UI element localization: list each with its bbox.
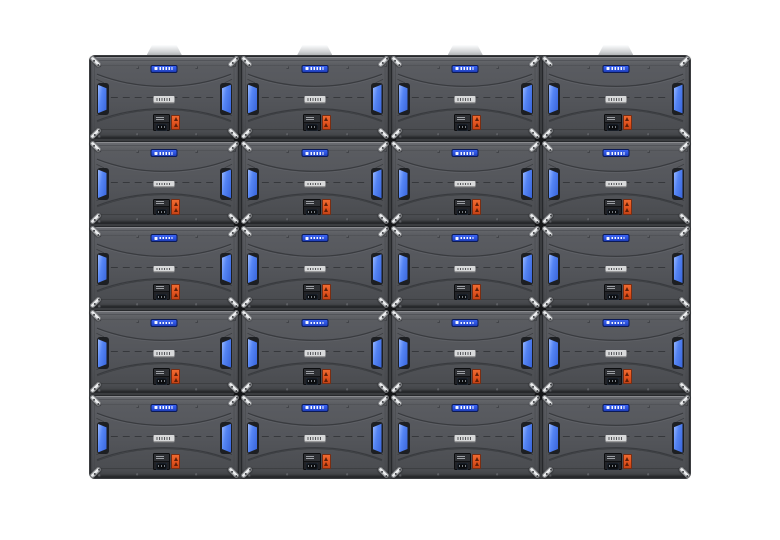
status-display — [306, 209, 318, 216]
warning-triangle-icon — [174, 372, 178, 376]
screw-icon — [685, 234, 688, 237]
cabinet-back-cover — [542, 226, 691, 309]
screw-icon — [437, 473, 440, 476]
brand-logo-text-marks — [160, 406, 173, 409]
brand-badge — [452, 404, 479, 412]
screw-icon — [384, 403, 387, 406]
warning-triangle-icon — [174, 123, 178, 127]
vent-blue-insert — [399, 84, 408, 114]
screw-icon — [384, 474, 387, 477]
screw-icon — [399, 64, 402, 67]
vent-left — [97, 337, 109, 369]
cabinet-back-cover — [391, 226, 540, 309]
screw-icon — [233, 234, 236, 237]
vent-blue-insert — [373, 423, 382, 453]
screw-icon — [136, 388, 139, 391]
module-print-marks — [154, 285, 170, 293]
screw-icon — [136, 405, 139, 408]
screw-icon — [233, 149, 236, 152]
power-connector — [171, 454, 180, 470]
serial-label — [605, 181, 626, 188]
screw-icon — [647, 303, 650, 306]
vent-blue-insert — [248, 254, 257, 284]
brand-logo-text-marks — [611, 322, 624, 325]
cabinet-back-cover — [90, 56, 239, 139]
screw-icon — [437, 303, 440, 306]
module-print-marks — [304, 200, 320, 208]
status-display — [457, 463, 469, 470]
serial-label — [304, 96, 325, 103]
serial-label — [154, 96, 175, 103]
vent-blue-insert — [674, 169, 683, 199]
vent-blue-insert — [98, 338, 107, 368]
brand-badge — [151, 65, 178, 73]
screw-icon — [346, 303, 349, 306]
cabinet-panel — [541, 309, 692, 394]
barcode-marks — [307, 183, 322, 186]
cabinet-back-cover — [90, 395, 239, 478]
brand-logo-icon — [456, 67, 459, 70]
cabinet-panel — [390, 394, 541, 479]
screw-icon — [647, 405, 650, 408]
cabinet-panel — [390, 225, 541, 310]
status-display — [306, 378, 318, 385]
warning-triangle-icon — [475, 123, 479, 127]
cabinet-back-cover — [90, 226, 239, 309]
vent-blue-insert — [248, 84, 257, 114]
vent-blue-insert — [248, 338, 257, 368]
vent-left — [247, 168, 259, 200]
vent-right — [672, 83, 684, 115]
cabinet-back-cover — [542, 310, 691, 393]
receiving-card-module — [153, 368, 171, 385]
vent-blue-insert — [674, 423, 683, 453]
barcode-marks — [458, 98, 473, 101]
power-connector — [472, 115, 481, 131]
screw-icon — [384, 220, 387, 223]
screw-icon — [346, 388, 349, 391]
barcode-marks — [157, 437, 172, 440]
brand-logo-icon — [155, 406, 158, 409]
status-display — [607, 209, 619, 216]
module-print-marks — [154, 369, 170, 377]
vent-blue-insert — [523, 169, 532, 199]
barcode-marks — [608, 268, 623, 271]
cabinet-back-cover — [90, 310, 239, 393]
brand-logo-icon — [606, 67, 609, 70]
brand-logo-icon — [155, 67, 158, 70]
receiving-card-module — [303, 368, 321, 385]
brand-badge — [151, 234, 178, 242]
serial-label — [455, 435, 476, 442]
screw-icon — [437, 66, 440, 69]
vent-blue-insert — [222, 169, 231, 199]
barcode-marks — [307, 437, 322, 440]
vent-left — [97, 253, 109, 285]
screw-icon — [136, 66, 139, 69]
module-print-marks — [455, 200, 471, 208]
serial-label — [455, 96, 476, 103]
warning-triangle-icon — [174, 462, 178, 466]
screw-icon — [384, 64, 387, 67]
cabinet-panel — [240, 309, 391, 394]
receiving-card-module — [454, 284, 472, 301]
cabinet-back-cover — [241, 310, 390, 393]
screw-icon — [346, 473, 349, 476]
screw-icon — [384, 149, 387, 152]
warning-triangle-icon — [174, 293, 178, 297]
vent-blue-insert — [248, 423, 257, 453]
lift-handle-plate — [448, 45, 483, 55]
power-connector — [171, 284, 180, 300]
cabinet-panel — [541, 225, 692, 310]
status-display — [457, 209, 469, 216]
screw-icon — [685, 64, 688, 67]
cabinet-back-cover — [391, 56, 540, 139]
screw-icon — [286, 66, 289, 69]
cabinet-panel — [390, 309, 541, 394]
module-print-marks — [304, 115, 320, 123]
barcode-marks — [157, 183, 172, 186]
barcode-marks — [608, 98, 623, 101]
cabinet-panel — [89, 309, 240, 394]
warning-triangle-icon — [324, 287, 328, 291]
cabinet-panel — [390, 55, 541, 140]
vent-blue-insert — [98, 423, 107, 453]
warning-triangle-icon — [625, 123, 629, 127]
vent-right — [371, 422, 383, 454]
brand-logo-text-marks — [611, 237, 624, 240]
brand-badge — [602, 319, 629, 327]
vent-blue-insert — [523, 423, 532, 453]
barcode-marks — [157, 268, 172, 271]
vent-right — [371, 83, 383, 115]
power-connector — [472, 454, 481, 470]
power-connector — [623, 454, 632, 470]
screw-icon — [286, 405, 289, 408]
brand-logo-text-marks — [461, 322, 474, 325]
warning-triangle-icon — [625, 287, 629, 291]
module-print-marks — [304, 285, 320, 293]
vent-right — [220, 253, 232, 285]
vent-left — [247, 83, 259, 115]
module-print-marks — [605, 285, 621, 293]
brand-logo-text-marks — [160, 152, 173, 155]
warning-triangle-icon — [174, 202, 178, 206]
screw-icon — [136, 218, 139, 221]
brand-badge — [301, 65, 328, 73]
barcode-marks — [307, 268, 322, 271]
vent-blue-insert — [98, 254, 107, 284]
brand-badge — [602, 404, 629, 412]
lift-handle-plate — [297, 45, 332, 55]
screw-icon — [98, 149, 101, 152]
status-display — [306, 124, 318, 131]
cabinet-panel — [89, 394, 240, 479]
screw-icon — [437, 320, 440, 323]
status-display — [156, 463, 168, 470]
brand-badge — [301, 234, 328, 242]
screw-icon — [534, 135, 537, 138]
power-connector — [171, 199, 180, 215]
vent-right — [220, 337, 232, 369]
vent-right — [521, 337, 533, 369]
warning-triangle-icon — [625, 457, 629, 461]
brand-badge — [151, 149, 178, 157]
brand-logo-icon — [155, 152, 158, 155]
vent-left — [398, 337, 410, 369]
brand-badge — [452, 319, 479, 327]
vent-blue-insert — [399, 423, 408, 453]
vent-left — [548, 422, 560, 454]
barcode-marks — [458, 183, 473, 186]
cabinet-back-cover — [391, 141, 540, 224]
brand-logo-text-marks — [461, 406, 474, 409]
brand-logo-icon — [305, 152, 308, 155]
screw-icon — [647, 320, 650, 323]
brand-logo-text-marks — [461, 237, 474, 240]
screw-icon — [384, 135, 387, 138]
screw-icon — [233, 220, 236, 223]
vent-right — [521, 83, 533, 115]
screw-icon — [399, 305, 402, 308]
warning-triangle-icon — [324, 202, 328, 206]
vent-blue-insert — [222, 338, 231, 368]
screw-icon — [233, 305, 236, 308]
vent-blue-insert — [248, 169, 257, 199]
screw-icon — [195, 473, 198, 476]
power-connector — [472, 369, 481, 385]
receiving-card-module — [153, 199, 171, 216]
vent-blue-insert — [549, 254, 558, 284]
vent-blue-insert — [523, 338, 532, 368]
receiving-card-module — [454, 453, 472, 470]
screw-icon — [399, 149, 402, 152]
brand-badge — [452, 234, 479, 242]
brand-logo-text-marks — [461, 152, 474, 155]
barcode-marks — [307, 98, 322, 101]
vent-left — [97, 83, 109, 115]
screw-icon — [136, 303, 139, 306]
brand-logo-icon — [456, 406, 459, 409]
receiving-card-module — [604, 368, 622, 385]
barcode-marks — [458, 437, 473, 440]
serial-label — [304, 435, 325, 442]
serial-label — [605, 266, 626, 273]
warning-triangle-icon — [475, 462, 479, 466]
status-display — [607, 378, 619, 385]
vent-left — [247, 422, 259, 454]
brand-logo-text-marks — [310, 237, 323, 240]
led-wall-product-render — [0, 0, 780, 540]
vent-right — [220, 422, 232, 454]
warning-triangle-icon — [475, 293, 479, 297]
warning-triangle-icon — [475, 117, 479, 121]
serial-label — [605, 350, 626, 357]
cabinet-back-cover — [241, 395, 390, 478]
brand-logo-text-marks — [310, 67, 323, 70]
cabinet-panel — [240, 225, 391, 310]
cabinet-back-cover — [90, 141, 239, 224]
cabinet-panel — [541, 394, 692, 479]
brand-badge — [151, 319, 178, 327]
brand-logo-icon — [606, 237, 609, 240]
screw-icon — [346, 66, 349, 69]
screw-icon — [647, 66, 650, 69]
screw-icon — [346, 320, 349, 323]
cabinet-back-cover — [542, 141, 691, 224]
brand-badge — [452, 65, 479, 73]
receiving-card-module — [303, 199, 321, 216]
vent-left — [398, 422, 410, 454]
serial-label — [455, 350, 476, 357]
vent-left — [247, 253, 259, 285]
receiving-card-module — [153, 114, 171, 131]
vent-right — [220, 83, 232, 115]
warning-triangle-icon — [475, 378, 479, 382]
status-display — [457, 294, 469, 301]
status-display — [607, 463, 619, 470]
warning-triangle-icon — [475, 287, 479, 291]
brand-badge — [151, 404, 178, 412]
brand-logo-text-marks — [611, 152, 624, 155]
vent-blue-insert — [549, 423, 558, 453]
status-display — [156, 294, 168, 301]
serial-label — [154, 350, 175, 357]
status-display — [306, 463, 318, 470]
vent-blue-insert — [373, 338, 382, 368]
barcode-marks — [458, 268, 473, 271]
cabinet-panel — [541, 140, 692, 225]
vent-right — [220, 168, 232, 200]
screw-icon — [98, 220, 101, 223]
screw-icon — [587, 405, 590, 408]
cabinet-panel — [240, 140, 391, 225]
barcode-marks — [608, 352, 623, 355]
cabinet-panel — [240, 55, 391, 140]
screw-icon — [233, 135, 236, 138]
screw-icon — [98, 234, 101, 237]
warning-triangle-icon — [174, 208, 178, 212]
warning-triangle-icon — [324, 123, 328, 127]
receiving-card-module — [153, 453, 171, 470]
cabinet-panel — [541, 55, 692, 140]
screw-icon — [437, 235, 440, 238]
module-print-marks — [304, 369, 320, 377]
screw-icon — [534, 220, 537, 223]
vent-right — [672, 337, 684, 369]
cabinet-back-cover — [241, 56, 390, 139]
receiving-card-module — [454, 199, 472, 216]
brand-logo-text-marks — [611, 67, 624, 70]
barcode-marks — [307, 352, 322, 355]
serial-label — [304, 266, 325, 273]
vent-blue-insert — [674, 254, 683, 284]
screw-icon — [496, 66, 499, 69]
vent-left — [97, 422, 109, 454]
serial-label — [154, 266, 175, 273]
brand-badge — [301, 149, 328, 157]
brand-logo-text-marks — [310, 322, 323, 325]
screw-icon — [647, 388, 650, 391]
vent-blue-insert — [674, 84, 683, 114]
power-connector — [472, 284, 481, 300]
vent-blue-insert — [399, 169, 408, 199]
module-print-marks — [154, 200, 170, 208]
warning-triangle-icon — [625, 372, 629, 376]
brand-logo-icon — [606, 321, 609, 324]
brand-logo-icon — [305, 321, 308, 324]
screw-icon — [685, 135, 688, 138]
screw-icon — [286, 473, 289, 476]
serial-label — [605, 435, 626, 442]
cabinet-panel — [89, 55, 240, 140]
power-connector — [322, 115, 331, 131]
module-print-marks — [605, 454, 621, 462]
vent-left — [548, 168, 560, 200]
screw-icon — [346, 235, 349, 238]
barcode-marks — [157, 352, 172, 355]
screw-icon — [136, 235, 139, 238]
brand-logo-icon — [305, 406, 308, 409]
warning-triangle-icon — [475, 372, 479, 376]
module-print-marks — [455, 369, 471, 377]
screw-icon — [399, 135, 402, 138]
module-print-marks — [605, 115, 621, 123]
vent-blue-insert — [98, 84, 107, 114]
warning-triangle-icon — [625, 202, 629, 206]
vent-right — [521, 422, 533, 454]
vent-blue-insert — [399, 338, 408, 368]
warning-triangle-icon — [475, 202, 479, 206]
vent-left — [548, 337, 560, 369]
vent-blue-insert — [523, 254, 532, 284]
vent-blue-insert — [399, 254, 408, 284]
warning-triangle-icon — [174, 287, 178, 291]
module-print-marks — [154, 115, 170, 123]
warning-triangle-icon — [475, 457, 479, 461]
warning-triangle-icon — [625, 378, 629, 382]
status-display — [156, 124, 168, 131]
vent-right — [672, 422, 684, 454]
cabinet-panel — [89, 140, 240, 225]
vent-blue-insert — [373, 254, 382, 284]
cabinet-panel — [390, 140, 541, 225]
brand-logo-text-marks — [611, 406, 624, 409]
warning-triangle-icon — [625, 462, 629, 466]
cabinet-back-cover — [391, 310, 540, 393]
vent-blue-insert — [222, 84, 231, 114]
receiving-card-module — [153, 284, 171, 301]
status-display — [457, 124, 469, 131]
brand-logo-icon — [606, 152, 609, 155]
screw-icon — [587, 66, 590, 69]
brand-logo-icon — [155, 237, 158, 240]
brand-logo-text-marks — [160, 67, 173, 70]
barcode-marks — [157, 98, 172, 101]
warning-triangle-icon — [324, 372, 328, 376]
power-connector — [322, 199, 331, 215]
vent-right — [371, 253, 383, 285]
power-connector — [623, 199, 632, 215]
screw-icon — [647, 473, 650, 476]
vent-left — [398, 83, 410, 115]
vent-right — [371, 168, 383, 200]
warning-triangle-icon — [324, 457, 328, 461]
serial-label — [455, 181, 476, 188]
brand-logo-text-marks — [160, 237, 173, 240]
power-connector — [623, 369, 632, 385]
